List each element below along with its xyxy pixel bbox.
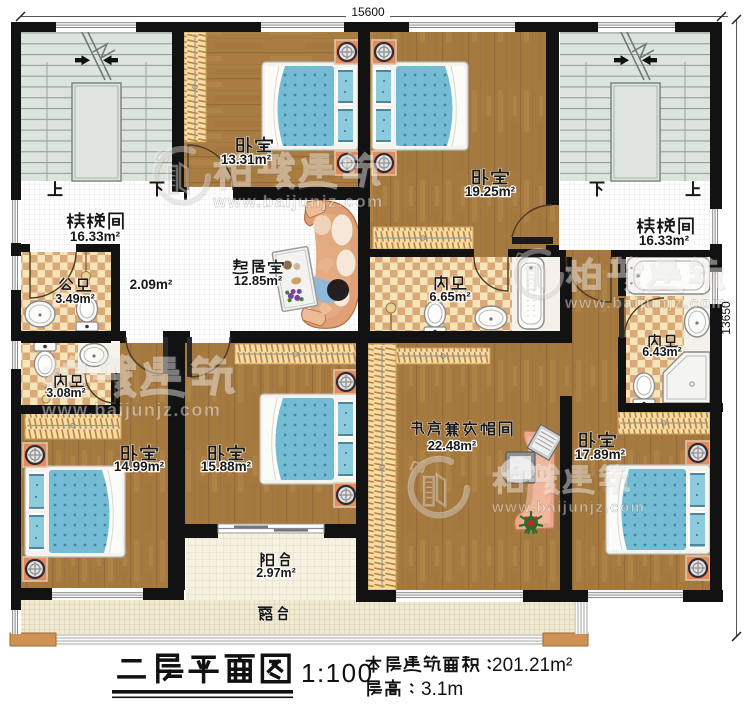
svg-text:13650: 13650 — [719, 301, 733, 335]
svg-text:3.1m: 3.1m — [421, 679, 463, 700]
svg-text:17.89m²: 17.89m² — [575, 447, 626, 462]
svg-text:12.85m²: 12.85m² — [234, 273, 283, 288]
svg-text:14.99m²: 14.99m² — [114, 459, 165, 474]
svg-text:1:100: 1:100 — [301, 658, 374, 688]
svg-text:3.08m²: 3.08m² — [46, 386, 86, 400]
svg-text:6.43m²: 6.43m² — [642, 345, 682, 359]
svg-text:15600: 15600 — [351, 5, 385, 19]
svg-text:2.97m²: 2.97m² — [256, 566, 296, 580]
svg-text:19.25m²: 19.25m² — [465, 184, 516, 199]
svg-text:201.21m²: 201.21m² — [492, 655, 572, 676]
svg-text:www.baijunjz.com: www.baijunjz.com — [564, 295, 727, 312]
svg-text:16.33m²: 16.33m² — [70, 229, 121, 244]
svg-text:6.65m²: 6.65m² — [429, 289, 471, 304]
svg-text:www.baijunjz.com: www.baijunjz.com — [491, 499, 645, 516]
svg-text:www.baijunjz.com: www.baijunjz.com — [212, 192, 384, 211]
svg-text:2.09m²: 2.09m² — [130, 277, 173, 292]
svg-text:15.88m²: 15.88m² — [201, 459, 252, 474]
svg-text:22.48m²: 22.48m² — [428, 438, 477, 453]
svg-text:3.49m²: 3.49m² — [55, 292, 95, 306]
svg-text:16.33m²: 16.33m² — [639, 233, 690, 248]
svg-text:www.baijunjz.com: www.baijunjz.com — [41, 400, 221, 420]
svg-text:13.31m²: 13.31m² — [221, 152, 272, 167]
